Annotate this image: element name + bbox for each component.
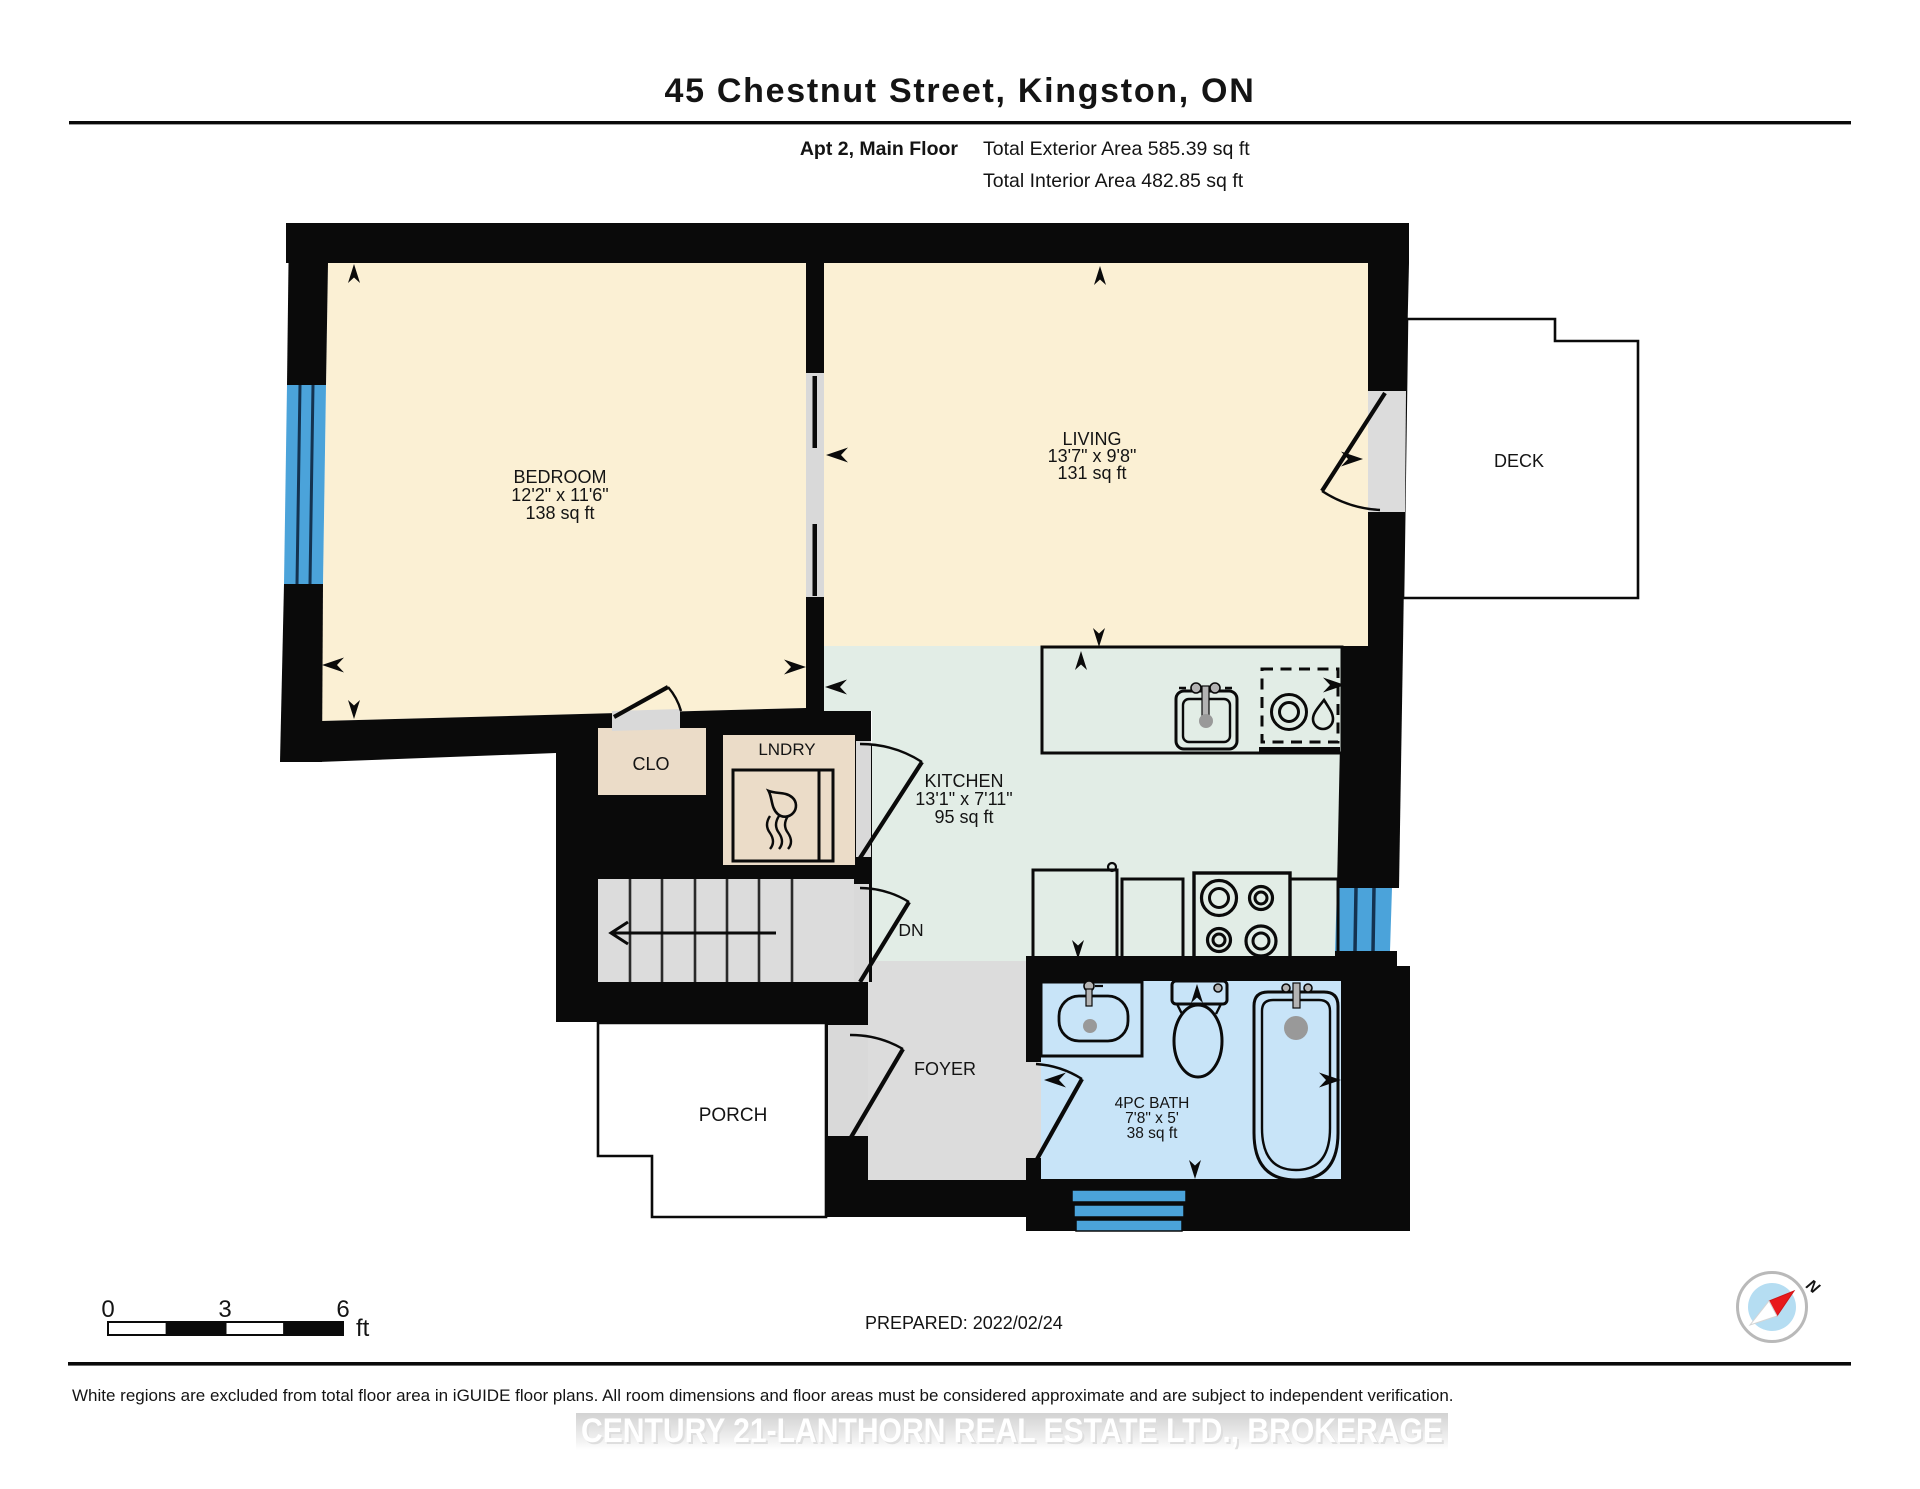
svg-text:Total Exterior Area 585.39 sq: Total Exterior Area 585.39 sq ft <box>983 138 1250 160</box>
svg-text:DN: DN <box>898 920 923 940</box>
svg-text:CENTURY 21-LANTHORN REAL ESTAT: CENTURY 21-LANTHORN REAL ESTATE LTD., BR… <box>581 1412 1443 1450</box>
svg-text:38 sq ft: 38 sq ft <box>1127 1125 1179 1142</box>
svg-text:45 Chestnut Street, Kingston,: 45 Chestnut Street, Kingston, ON <box>665 72 1256 110</box>
svg-text:Total Interior Area 482.85 sq: Total Interior Area 482.85 sq ft <box>983 170 1244 192</box>
svg-text:6: 6 <box>336 1296 349 1323</box>
svg-text:95 sq ft: 95 sq ft <box>934 807 993 827</box>
svg-text:White regions are excluded fro: White regions are excluded from total fl… <box>72 1386 1454 1405</box>
svg-text:PORCH: PORCH <box>699 1105 768 1126</box>
svg-text:CLO: CLO <box>632 754 669 774</box>
svg-text:DECK: DECK <box>1494 451 1544 471</box>
svg-text:12'2" x 11'6": 12'2" x 11'6" <box>511 485 608 505</box>
svg-text:PREPARED: 2022/02/24: PREPARED: 2022/02/24 <box>865 1313 1063 1333</box>
svg-text:KITCHEN: KITCHEN <box>924 771 1003 791</box>
svg-text:13'1" x 7'11": 13'1" x 7'11" <box>915 789 1012 809</box>
svg-text:138 sq ft: 138 sq ft <box>525 503 594 523</box>
svg-text:ft: ft <box>356 1315 370 1342</box>
svg-text:131 sq ft: 131 sq ft <box>1057 463 1126 483</box>
svg-text:BEDROOM: BEDROOM <box>513 467 606 487</box>
svg-text:3: 3 <box>218 1296 231 1323</box>
svg-text:Apt 2, Main Floor: Apt 2, Main Floor <box>800 138 959 160</box>
svg-text:FOYER: FOYER <box>914 1059 976 1079</box>
svg-text:0: 0 <box>101 1296 114 1323</box>
svg-text:LNDRY: LNDRY <box>758 740 815 759</box>
